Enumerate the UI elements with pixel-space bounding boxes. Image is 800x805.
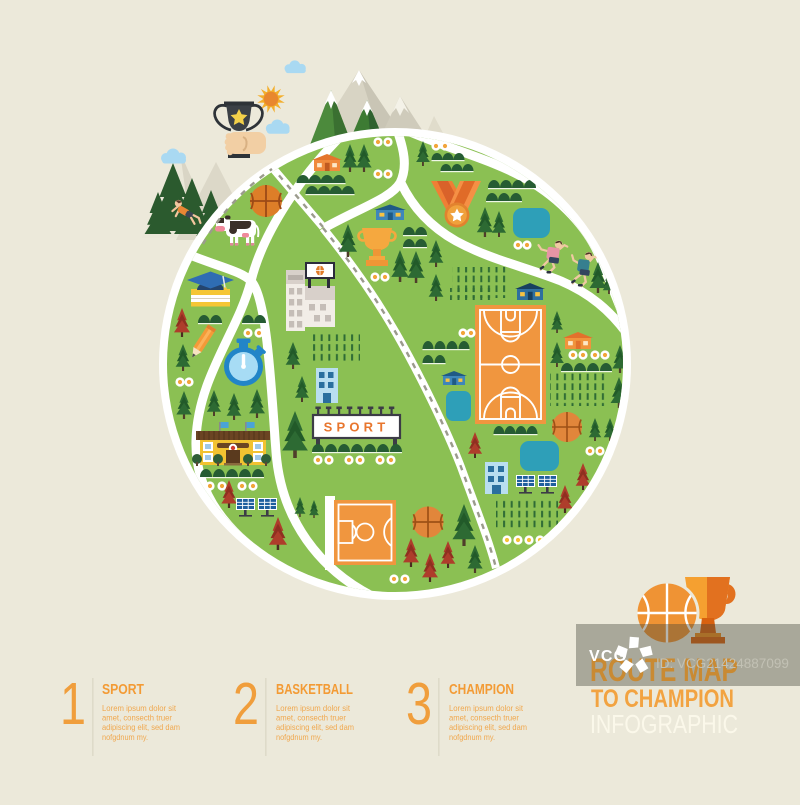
svg-text:adipiscing elit, sed dam: adipiscing elit, sed dam xyxy=(276,722,354,732)
svg-text:amet, consecth truer: amet, consecth truer xyxy=(449,713,519,723)
svg-text:3: 3 xyxy=(406,671,432,737)
svg-text:2: 2 xyxy=(233,671,259,737)
svg-text:nofgdnum my.: nofgdnum my. xyxy=(449,732,495,742)
svg-text:INFOGRAPHIC: INFOGRAPHIC xyxy=(590,709,738,739)
svg-text:adipiscing elit, sed dam: adipiscing elit, sed dam xyxy=(102,722,180,732)
svg-text:SPORT: SPORT xyxy=(102,682,144,698)
svg-text:Lorem ipsum dolor sit: Lorem ipsum dolor sit xyxy=(276,703,351,713)
svg-text:nofgdnum my.: nofgdnum my. xyxy=(102,732,148,742)
svg-text:SPORT: SPORT xyxy=(324,420,390,435)
svg-text:adipiscing elit, sed dam: adipiscing elit, sed dam xyxy=(449,722,527,732)
svg-text:amet, consecth truer: amet, consecth truer xyxy=(102,713,172,723)
svg-text:Lorem ipsum dolor sit: Lorem ipsum dolor sit xyxy=(449,703,524,713)
svg-text:CHAMPION: CHAMPION xyxy=(449,682,514,698)
svg-text:1: 1 xyxy=(60,671,86,737)
svg-text:nofgdnum my.: nofgdnum my. xyxy=(276,732,322,742)
svg-text:BASKETBALL: BASKETBALL xyxy=(276,682,353,698)
svg-text:ID: VCG21424887099: ID: VCG21424887099 xyxy=(656,656,789,671)
svg-text:Lorem ipsum dolor sit: Lorem ipsum dolor sit xyxy=(102,703,177,713)
svg-text:amet, consecth truer: amet, consecth truer xyxy=(276,713,346,723)
